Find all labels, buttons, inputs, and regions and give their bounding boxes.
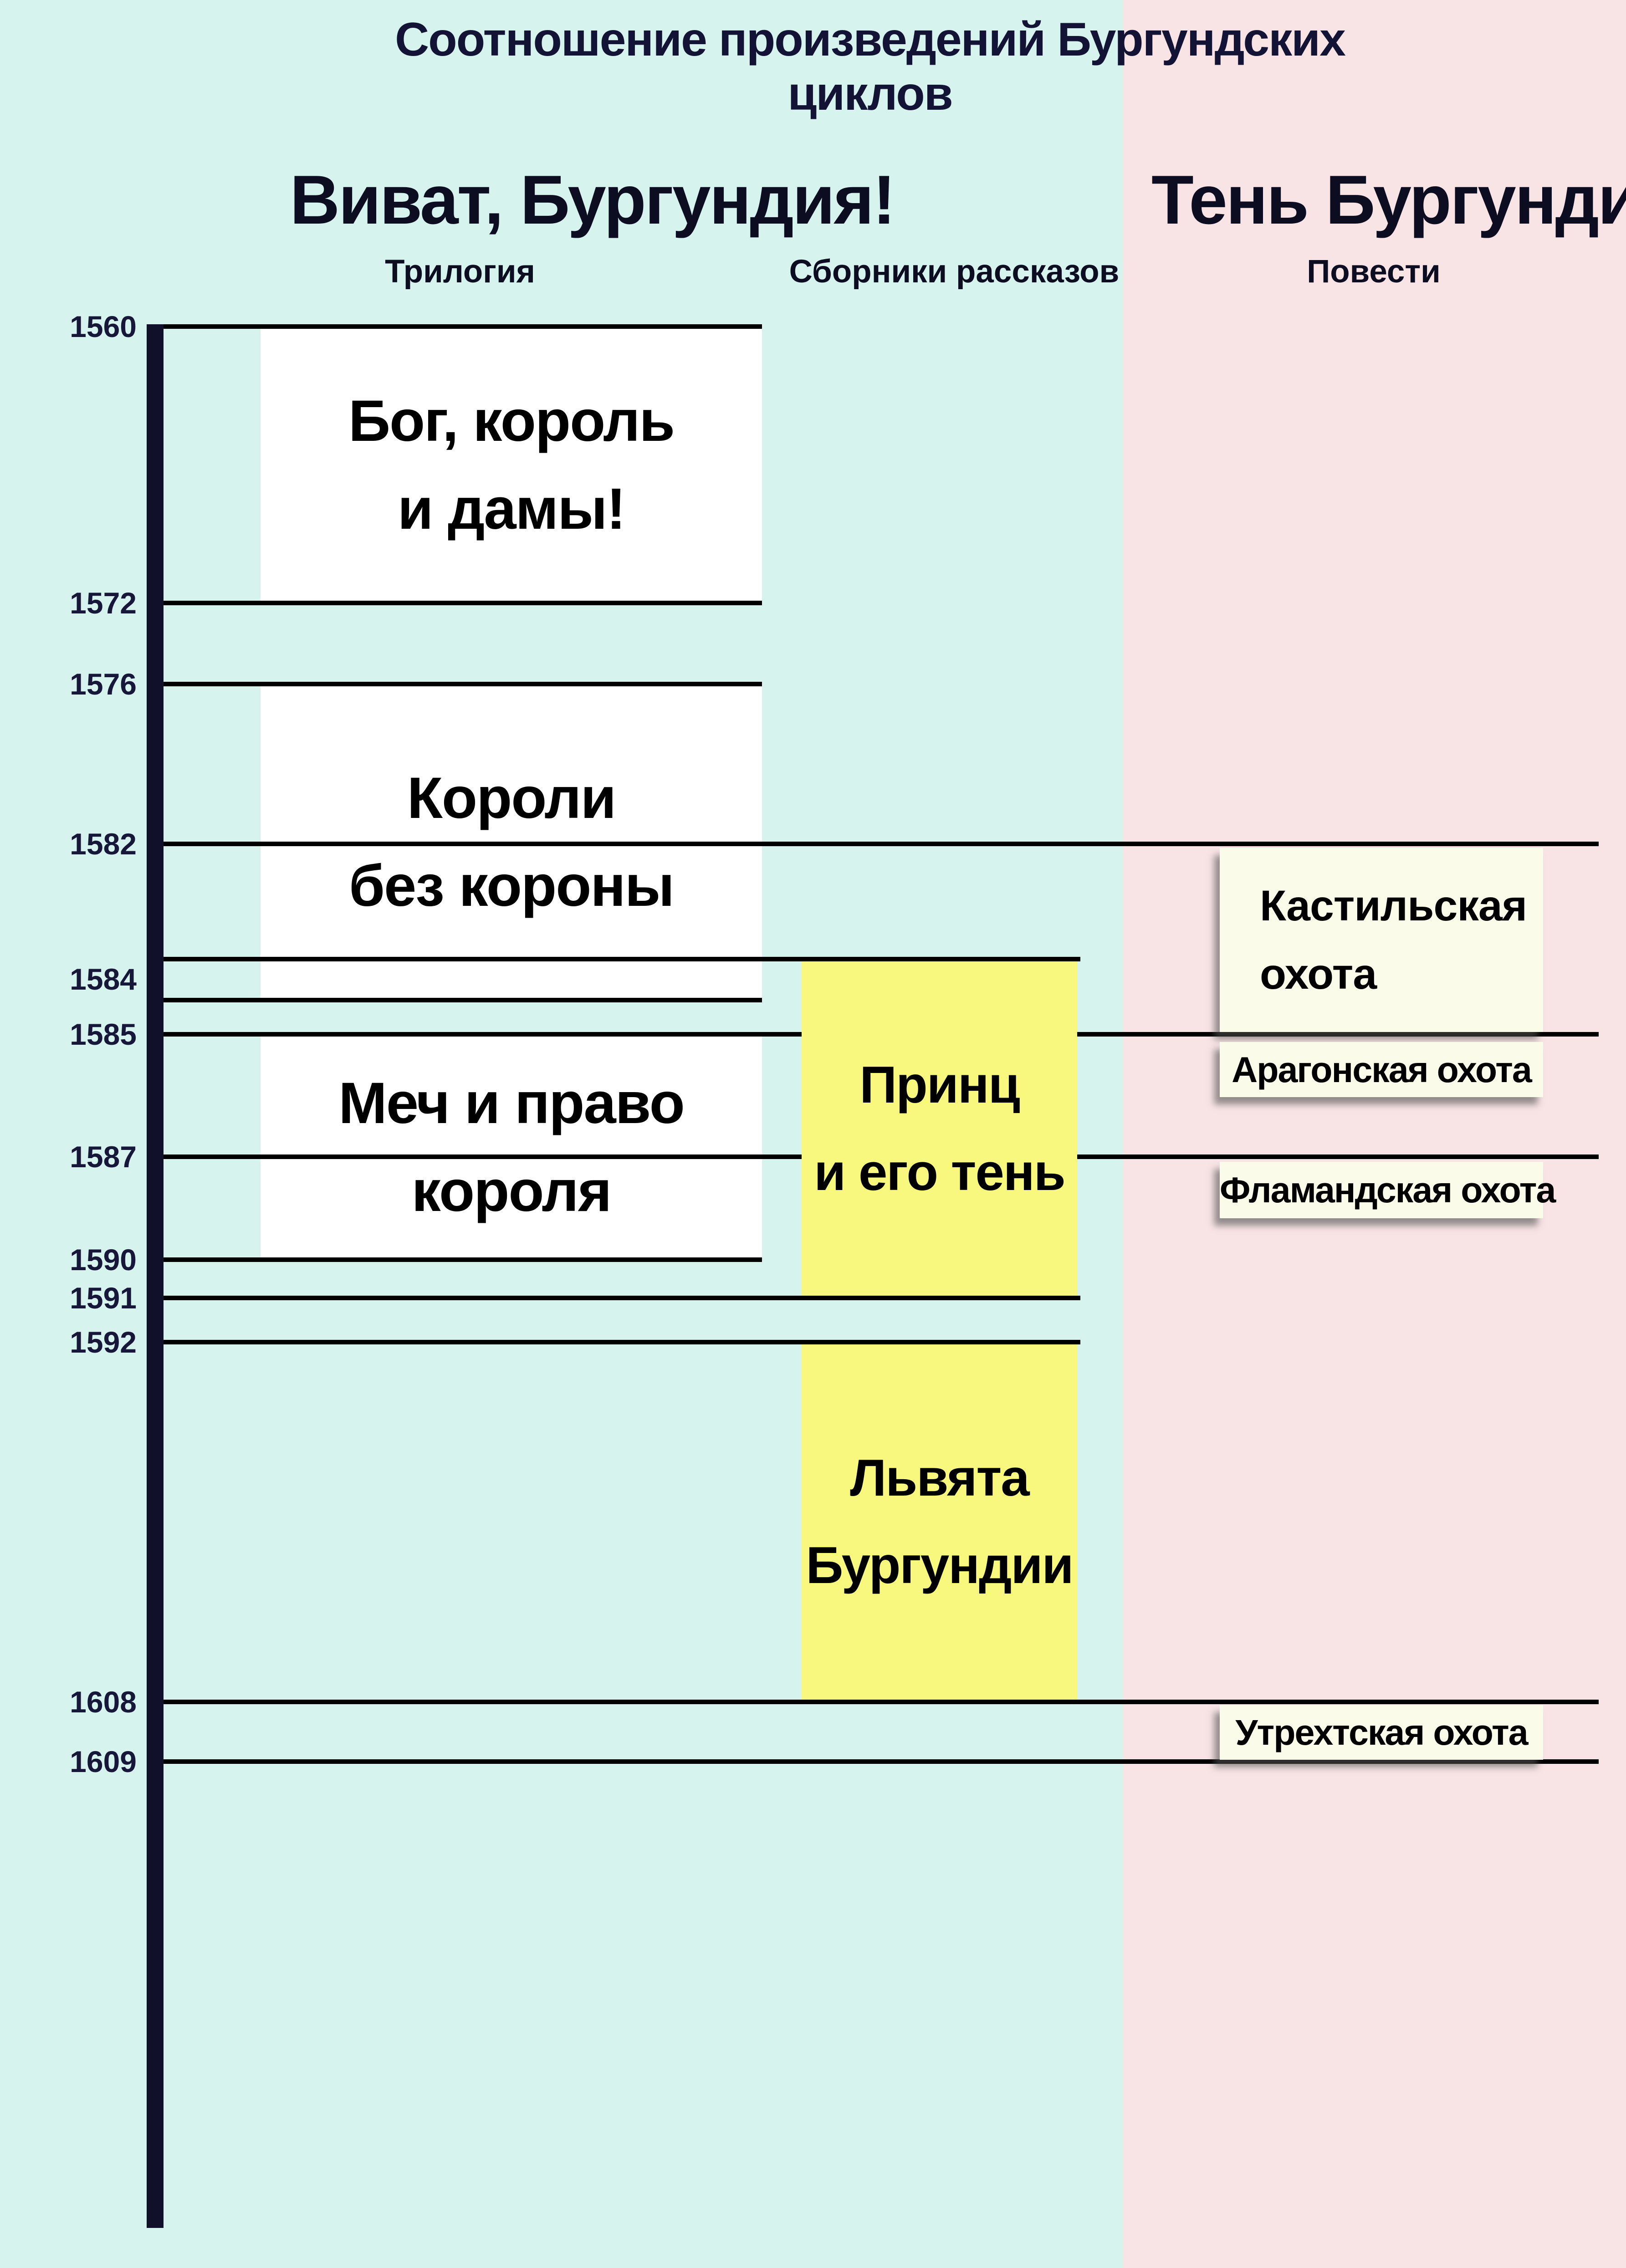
cycle-heading-vivat: Виват, Бургундия! (137, 160, 1048, 240)
work-title: Принц и его тень (802, 1042, 1077, 1216)
work-title: Фламандская охота (1220, 1170, 1543, 1211)
year-tick-1609: 1609 (0, 1745, 137, 1778)
work-title-line: Утрехтская охота (1220, 1712, 1543, 1753)
work-title: Арагонская охота (1220, 1049, 1543, 1090)
year-line-1584-collections (150, 957, 1080, 961)
work-title-line: Принц (802, 1042, 1077, 1129)
work-box-mech-i-pravo-korolya: Меч и право короля (261, 1037, 762, 1257)
work-title: Кастильская охота (1220, 872, 1543, 1008)
work-title-line: Бог, король (261, 377, 762, 465)
work-box-bog-korol-i-damy: Бог, король и дамы! (261, 329, 762, 601)
work-title-line: Кастильская (1260, 872, 1543, 940)
year-tick-1592: 1592 (0, 1326, 137, 1359)
year-line-1608 (150, 1700, 1599, 1704)
year-tick-1608: 1608 (0, 1686, 137, 1718)
year-tick-1582: 1582 (0, 828, 137, 860)
work-title-line: охота (1260, 940, 1543, 1008)
work-title-line: Меч и право (261, 1059, 762, 1147)
year-tick-1587: 1587 (0, 1140, 137, 1173)
work-title-line: Фламандская охота (1220, 1170, 1543, 1211)
work-box-flamandskaya-okhota: Фламандская охота (1220, 1162, 1543, 1218)
year-tick-1560: 1560 (0, 310, 137, 343)
work-title-line: Львята (802, 1435, 1077, 1522)
work-title: Бог, король и дамы! (261, 377, 762, 553)
year-tick-1590: 1590 (0, 1243, 137, 1276)
work-title-line: Бургундии (802, 1522, 1077, 1609)
year-line-1592 (150, 1340, 1080, 1344)
year-line-1572 (150, 601, 762, 605)
timeline-axis (147, 324, 164, 2228)
work-title-line: Арагонская охота (1220, 1049, 1543, 1090)
work-box-lvyata-burgundii: Львята Бургундии (802, 1344, 1077, 1700)
work-title-line: Короли (261, 754, 762, 842)
year-line-1576 (150, 682, 762, 686)
year-tick-1591: 1591 (0, 1282, 137, 1314)
work-box-prints-i-ego-ten: Принц и его тень (802, 962, 1077, 1296)
year-line-1609 (150, 1759, 1599, 1764)
column-label-novellas: Повести (1237, 253, 1510, 290)
year-line-1590 (150, 1257, 762, 1262)
work-box-utrekhtskaya-okhota: Утрехтская охота (1220, 1705, 1543, 1760)
year-tick-1584: 1584 (0, 963, 137, 996)
work-title-line: и его тень (802, 1129, 1077, 1216)
year-tick-1572: 1572 (0, 587, 137, 619)
work-title-line: и дамы! (261, 465, 762, 553)
year-line-1591 (150, 1296, 1080, 1300)
chart-title: Соотношение произведений Бургундских цик… (358, 13, 1382, 121)
year-tick-1585: 1585 (0, 1018, 137, 1051)
work-title: Утрехтская охота (1220, 1712, 1543, 1753)
work-box-aragonskaya-okhota: Арагонская охота (1220, 1042, 1543, 1097)
year-line-1560 (150, 324, 762, 329)
year-line-1584-trilogy (150, 998, 762, 1002)
burgundy-cycles-timeline: Соотношение произведений Бургундских цик… (0, 0, 1626, 2268)
ten-cycle-background (1123, 0, 1626, 2268)
cycle-heading-ten: Тень Бургундии (1151, 160, 1626, 240)
work-title: Меч и право короля (261, 1059, 762, 1235)
column-label-trilogy: Трилогия (323, 253, 597, 290)
work-title: Львята Бургундии (802, 1435, 1077, 1609)
work-box-kastilskaya-okhota: Кастильская охота (1220, 848, 1543, 1032)
year-tick-1576: 1576 (0, 668, 137, 700)
year-line-1582 (150, 842, 1599, 846)
column-label-story-collections: Сборники рассказов (770, 253, 1139, 290)
work-title-line: без короны (261, 842, 762, 930)
work-title-line: короля (261, 1147, 762, 1235)
